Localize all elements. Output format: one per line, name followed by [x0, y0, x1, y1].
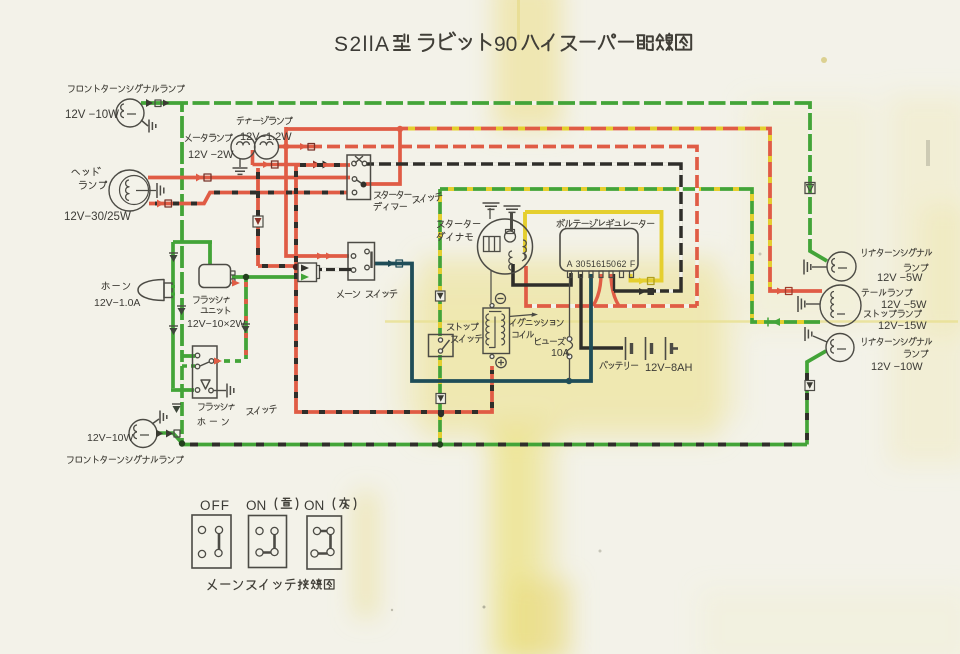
- svg-text:12V−1.2W: 12V−1.2W: [240, 131, 292, 143]
- svg-text:12V −10W: 12V −10W: [65, 109, 119, 121]
- svg-text:A: A: [567, 259, 573, 269]
- svg-text:90: 90: [494, 33, 517, 56]
- svg-text:12V −2W: 12V −2W: [188, 149, 234, 161]
- svg-text:61: 61: [596, 259, 606, 269]
- svg-text:12V−10×2W: 12V−10×2W: [187, 318, 245, 330]
- svg-text:30: 30: [576, 259, 586, 269]
- svg-text:ON: ON: [304, 498, 324, 513]
- svg-text:62: 62: [617, 259, 627, 269]
- svg-text:50: 50: [606, 259, 616, 269]
- svg-text:12V−10W: 12V−10W: [87, 432, 133, 444]
- svg-text:51: 51: [586, 259, 596, 269]
- svg-text:12V −10W: 12V −10W: [871, 361, 923, 373]
- svg-text:12V−30/25W: 12V−30/25W: [64, 211, 131, 223]
- svg-text:10A: 10A: [551, 347, 570, 359]
- svg-text:F: F: [630, 259, 636, 269]
- svg-text:12V−15W: 12V−15W: [878, 320, 927, 332]
- svg-text:12V−8AH: 12V−8AH: [645, 362, 692, 374]
- svg-text:12V−1.0A: 12V−1.0A: [94, 297, 140, 309]
- svg-text:12V −5W: 12V −5W: [881, 299, 927, 311]
- svg-text:12V −5W: 12V −5W: [877, 272, 923, 284]
- svg-text:OFF: OFF: [200, 498, 230, 513]
- svg-text:S2llA: S2llA: [334, 33, 391, 56]
- svg-text:ON: ON: [246, 498, 266, 513]
